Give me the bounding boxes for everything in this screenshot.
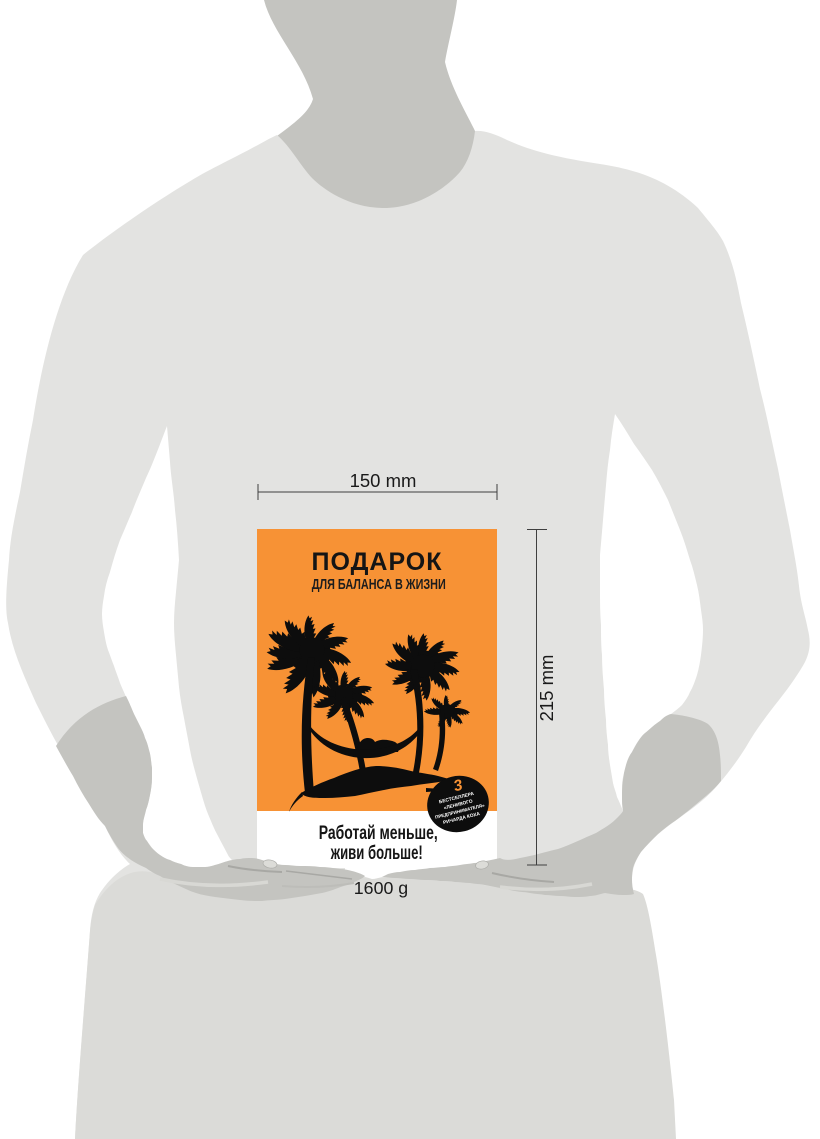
svg-text:живи больше!: живи больше! xyxy=(330,843,423,864)
svg-text:215 mm: 215 mm xyxy=(536,655,557,722)
svg-text:1600 g: 1600 g xyxy=(354,878,408,898)
svg-text:150 mm: 150 mm xyxy=(350,470,417,491)
svg-text:Работай меньше,: Работай меньше, xyxy=(319,823,438,844)
svg-text:ПОДАРОК: ПОДАРОК xyxy=(312,548,443,576)
svg-text:ДЛЯ БАЛАНСА В ЖИЗНИ: ДЛЯ БАЛАНСА В ЖИЗНИ xyxy=(312,577,446,593)
